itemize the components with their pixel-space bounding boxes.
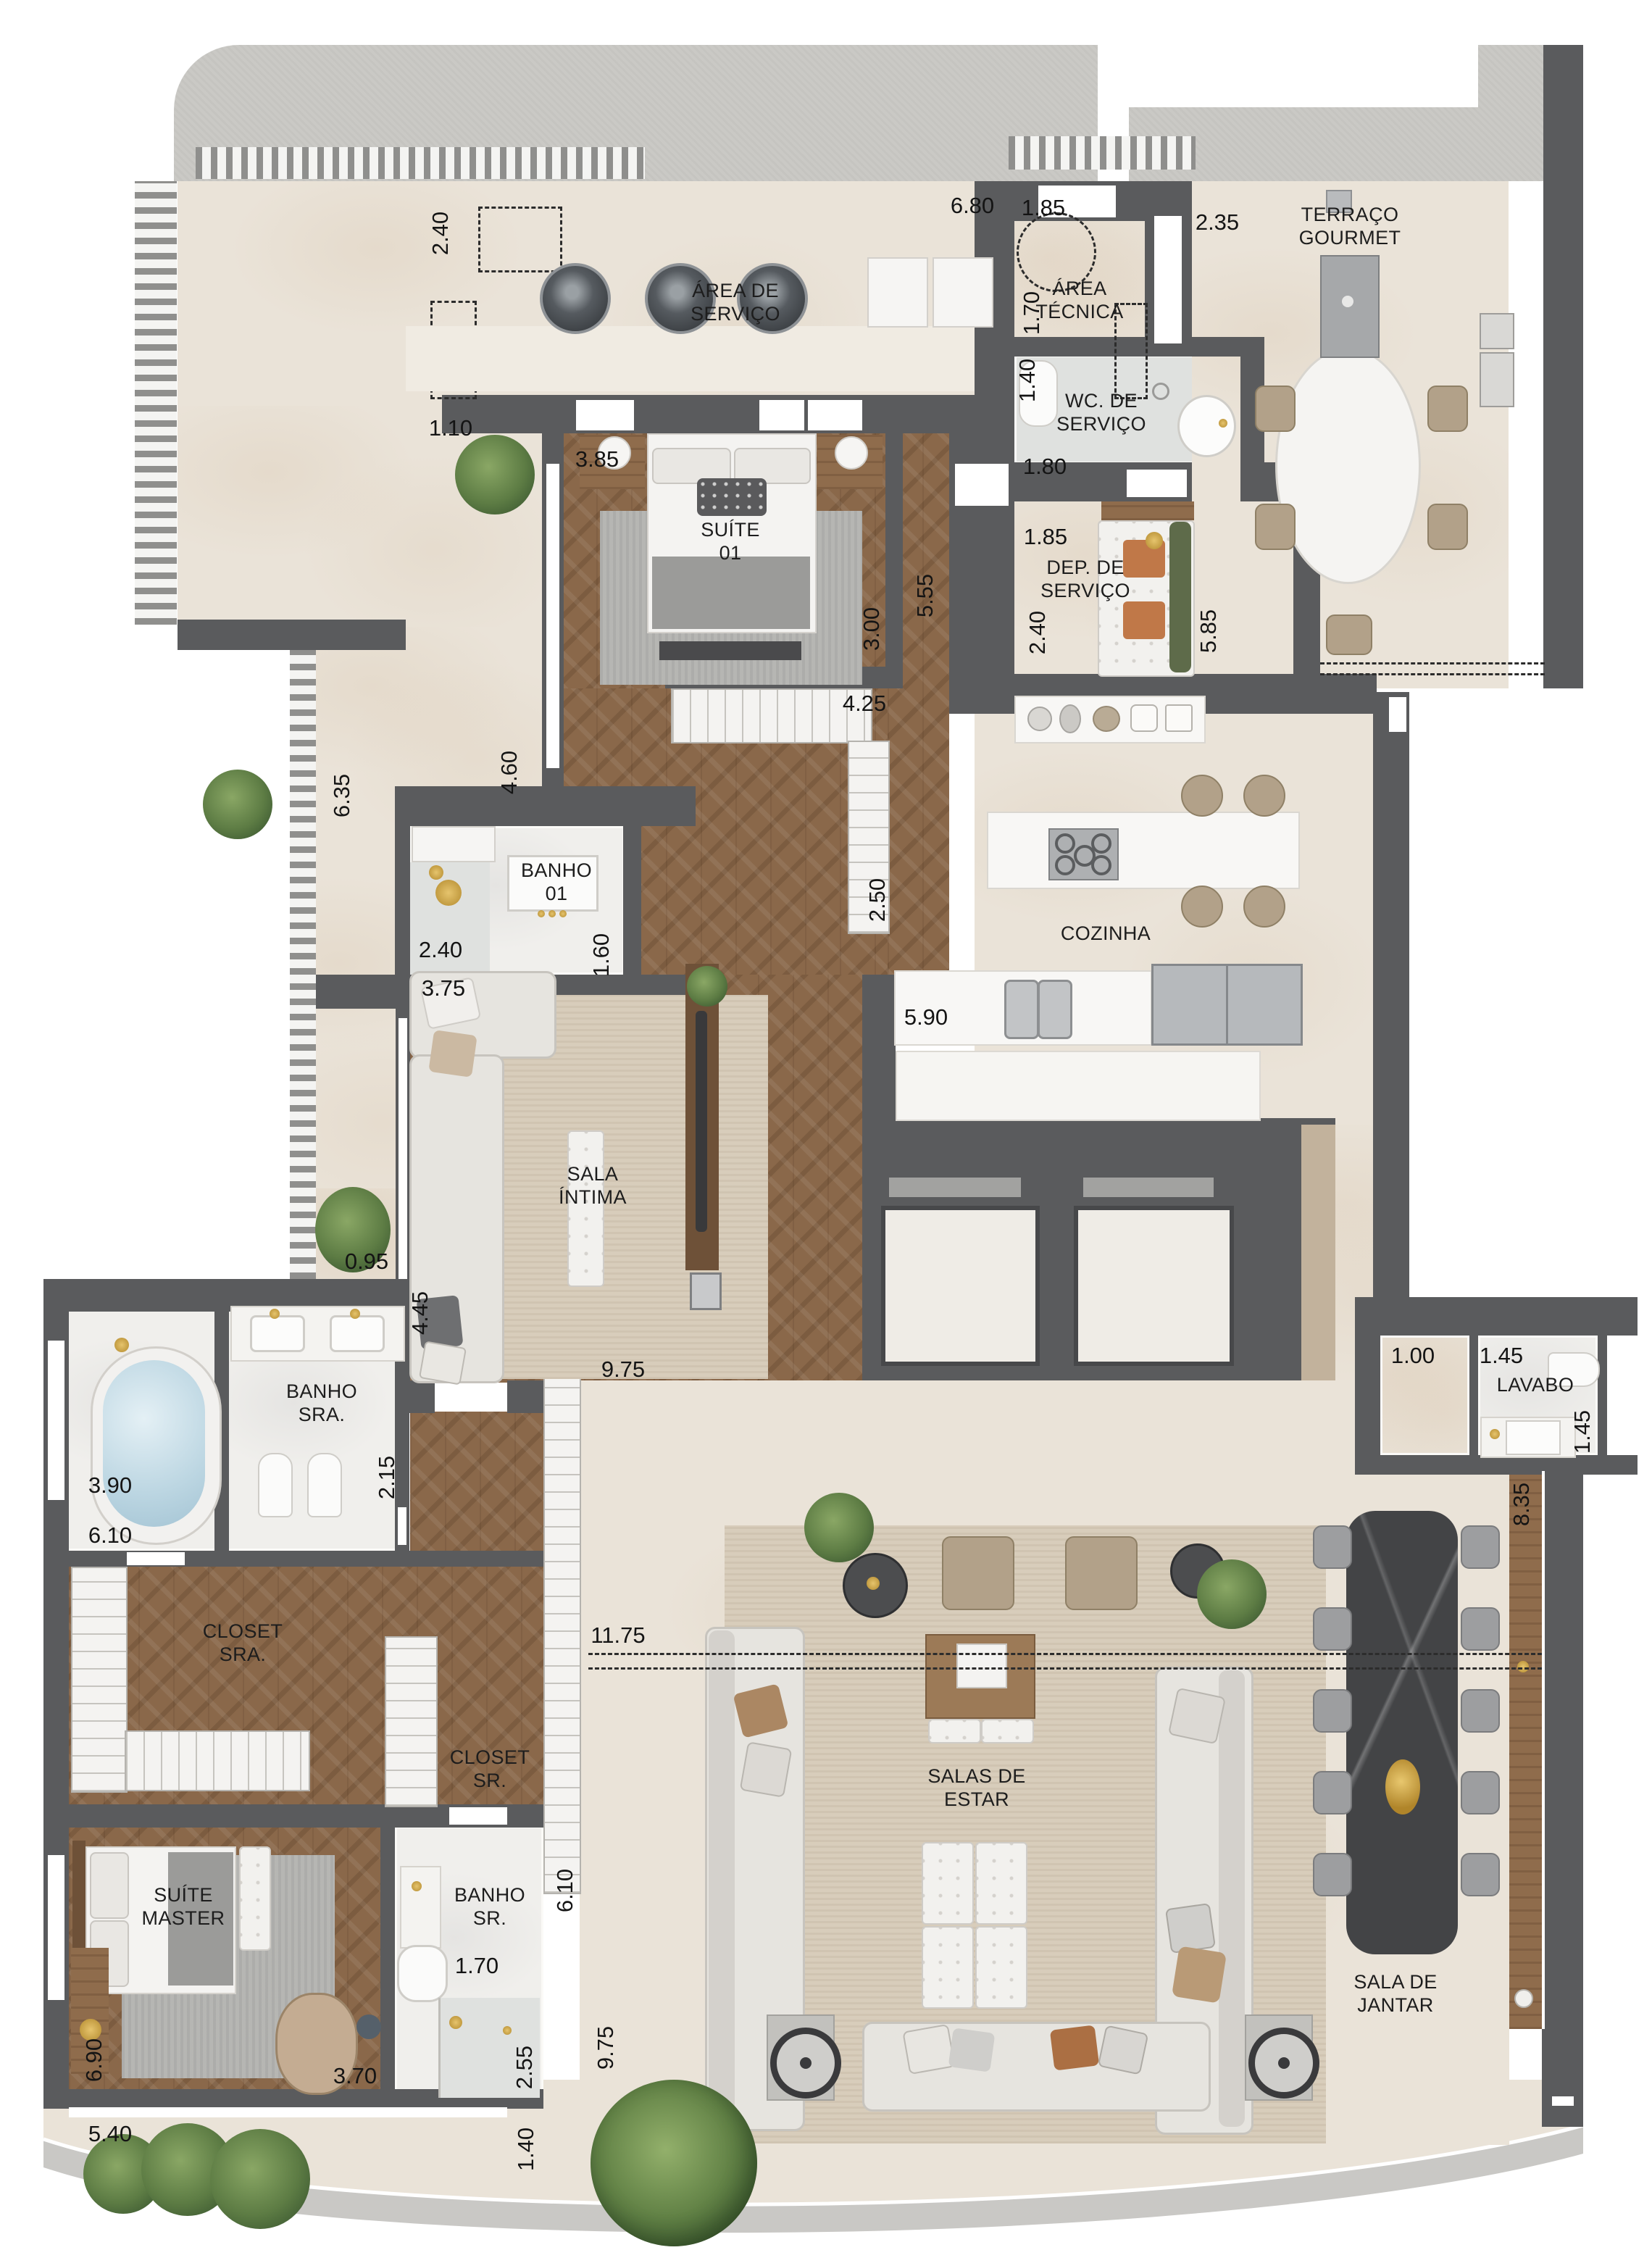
dim-4-45: 4.45 [407,1291,433,1335]
dim-1-40b: 1.40 [513,2128,539,2171]
dim-6-10: 6.10 [88,1522,132,1549]
suite01-blanket [652,557,810,629]
wall [409,1380,435,1413]
dryer [933,257,993,328]
coffee-table-tray [956,1643,1007,1688]
tub-faucet [114,1338,129,1352]
master-side-stool [356,2014,381,2039]
counter-appliance [1093,706,1120,732]
balcony-tree [591,2080,757,2246]
ref-line [1320,662,1545,664]
ref-line [588,1667,1542,1670]
door-gap [398,1507,406,1545]
fan [1248,2028,1319,2099]
sofa-pillow [1165,1903,1216,1954]
banho01-vanity [412,826,496,862]
bathtub-water [103,1360,205,1527]
wall [1355,1336,1380,1455]
ottoman-grid [922,1926,974,2009]
door-gap [127,1552,185,1565]
burner [1074,845,1096,867]
ref-line [588,1653,1542,1655]
door-gap [449,1807,507,1825]
dim-2-40c: 2.40 [419,937,462,963]
kitchen-sink [1004,980,1039,1039]
dim-3-90: 3.90 [88,1472,132,1499]
counter-appliance [1027,707,1052,731]
dim-3-85: 3.85 [575,446,619,472]
dining-chair [1313,1689,1352,1733]
dim-2-40: 2.40 [427,212,454,255]
sr-tub [397,1945,448,2002]
closet-sra-shelf-left [71,1567,128,1793]
label-sala-de-jantar: SALA DE JANTAR [1353,1971,1437,2017]
wall [507,1380,545,1413]
dim-1-10: 1.10 [429,415,472,441]
double-door [435,1383,507,1412]
dim-4-25: 4.25 [843,691,886,717]
dim-2-35: 2.35 [1196,209,1239,236]
kitchen-stool [1243,886,1285,928]
elevator-sill-2 [1083,1178,1214,1197]
ref-line [1320,673,1545,675]
banho01-chandelier [435,880,462,906]
dining-chair [1313,1525,1352,1569]
sideboard-decor [1517,1661,1529,1672]
closet-sra-shelf-bottom [125,1730,310,1791]
dim-2-40b: 2.40 [1025,611,1051,654]
dim-1-85b: 1.85 [1024,524,1067,550]
lavabo-faucet [1490,1429,1500,1439]
sofa-pillow [1098,2025,1149,2075]
dim-2-50: 2.50 [864,878,890,922]
label-dep-servico: DEP. DE SERVIÇO [1040,557,1130,603]
kitchen-stool [1181,886,1223,928]
kitchen-stool [1181,775,1223,817]
label-area-tecnica: ÁREA TÉCNICA [1035,278,1123,324]
closet-sr-shelf-right [543,1355,581,1894]
label-banho-sra: BANHO SRA. [286,1380,357,1427]
dim-6-10b: 6.10 [552,1869,578,1912]
washer [867,257,928,328]
sofa-pillow [428,1030,477,1078]
wall [178,620,406,650]
lavabo-basin [1506,1420,1561,1455]
terraco-chair [1427,386,1468,432]
dim-5-40: 5.40 [88,2121,132,2147]
wall [43,1551,580,1567]
dim-3-75: 3.75 [422,975,465,1001]
fan [770,2028,841,2099]
wall-unit [1480,313,1514,349]
kitchen-cabinet [896,1051,1261,1121]
sofa-pillow [419,1341,467,1385]
suite01-bench [659,641,801,660]
coffee-ottoman [981,1719,1034,1743]
hatch-strip-left [135,181,177,625]
dim-6-35: 6.35 [329,774,355,817]
door-gap [1154,216,1182,343]
sofa-pillow [902,2024,955,2075]
dining-chair [1461,1689,1500,1733]
wall-right-edge [1542,1471,1583,2127]
terraco-chair [1427,504,1468,550]
living-plant-right [1197,1559,1267,1629]
edge-handle [1552,2096,1574,2106]
wall [442,395,975,433]
dining-chair [1313,1607,1352,1651]
dim-9-75b: 9.75 [593,2026,619,2070]
dining-chair [1461,1771,1500,1814]
dining-chair [1461,1853,1500,1896]
burner [1055,833,1075,854]
elevator-shaft-2 [1074,1206,1234,1366]
dining-centerpiece [1385,1759,1420,1814]
sr-shower-head [449,2016,462,2029]
wall [1469,1336,1478,1455]
chaise-back [1219,1670,1245,2127]
hatch-strip-top-2 [1009,136,1196,170]
wc-sink [1177,395,1236,457]
balcony-strip [1607,1336,1636,1455]
wall [949,406,1014,714]
dep-lamp [1146,532,1163,549]
console-plant [687,966,727,1007]
wall [1192,337,1240,357]
dim-1-70: 1.70 [1019,291,1045,335]
wc-faucet [1219,419,1227,428]
sra-basin [330,1315,385,1352]
window-gap [759,400,804,430]
wall [395,826,410,975]
counter-appliance [1059,704,1081,733]
terraco-table [1275,348,1421,584]
floor-plan: ÁREA DE SERVIÇO ÁREA TÉCNICA TERRAÇO GOU… [0,0,1652,2250]
outdoor-kitchen-knob [1342,296,1353,307]
dim-1-85: 1.85 [1022,195,1065,221]
window-gap [546,464,559,768]
elevator-shaft-1 [881,1206,1040,1366]
label-closet-sr: CLOSET SR. [450,1746,530,1793]
dim-5-55: 5.55 [912,574,938,617]
dim-5-85: 5.85 [1196,609,1222,653]
dim-2-15: 2.15 [374,1456,400,1499]
kitchen-sink [1038,980,1072,1039]
sofa-pillow [740,1741,793,1798]
terraco-chair [1255,504,1296,550]
counter-appliance [1130,704,1158,732]
wall [623,826,641,975]
window-gap [48,1341,64,1500]
label-banho-sr: BANHO SR. [454,1884,525,1930]
dep-shelf [1101,501,1194,520]
dim-3-00: 3.00 [859,607,885,651]
kitchen-stool [1243,775,1285,817]
dim-2-55: 2.55 [512,2046,538,2089]
door-gap [955,464,1009,506]
ottoman-grid [975,1842,1027,1925]
dim-11-75: 11.75 [591,1622,645,1649]
label-suite-master: SUÍTE MASTER [142,1884,225,1930]
label-cozinha: COZINHA [1061,922,1151,946]
label-salas-de-estar: SALAS DE ESTAR [927,1765,1025,1812]
media-box [690,1272,722,1310]
side-table-decor [867,1577,880,1590]
closet-sr-shelf-center [385,1636,438,1807]
banho01-faucet [538,910,545,917]
dep-blanket [1169,522,1191,672]
suite01-accent-pillow [697,478,767,516]
dim-9-75: 9.75 [601,1357,645,1383]
window-sill [69,2107,507,2117]
elevator-side-strip [1301,1125,1335,1380]
dim-1-45b: 1.45 [1569,1410,1595,1454]
label-banho-01: BANHO 01 [521,859,592,906]
sofa-pillow [1168,1688,1226,1745]
sra-bidet [307,1453,342,1517]
dim-5-90: 5.90 [904,1004,948,1030]
laundry-sink [540,263,611,334]
dining-chair [1313,1853,1352,1896]
wall [1598,1336,1607,1455]
dim-1-40: 1.40 [1014,359,1040,402]
window-gap [1389,697,1406,732]
window-gap [808,400,862,430]
banho01-faucet [559,910,567,917]
sofa-pillow [1172,1946,1227,2003]
master-bench [239,1846,271,1951]
ottoman-grid [922,1842,974,1925]
label-suite-01: SUÍTE 01 [701,519,760,565]
sra-faucet [270,1309,280,1319]
fridge [1151,964,1228,1046]
dim-1-80: 1.80 [1023,454,1067,480]
ottoman-grid [975,1926,1027,2009]
outer-wall-right-top [1543,45,1583,688]
wall-unit [1480,352,1514,407]
dim-6-90: 6.90 [81,2038,107,2082]
living-armchair [1065,1536,1138,1610]
sideboard-decor [1514,1989,1533,2008]
dim-1-00: 1.00 [1391,1343,1435,1369]
label-area-servico: ÁREA DE SERVIÇO [691,280,780,326]
chaise-back [709,1630,735,2123]
service-counter [406,326,975,391]
terraco-chair [1326,614,1372,655]
dim-3-70: 3.70 [333,2063,377,2089]
dim-1-60: 1.60 [588,933,614,977]
sofa-pillow [1050,2025,1099,2070]
hatch-strip-top [196,147,645,179]
master-pillow [90,1852,129,1919]
suite-terrace-plant [455,435,535,514]
suite01-lamp [835,436,868,470]
kitchen-island [987,812,1300,889]
dim-0-95: 0.95 [345,1249,388,1275]
terrace-band-corner [1478,45,1548,107]
dim-6-80: 6.80 [951,193,994,219]
living-armchair [942,1536,1014,1610]
living-plant-left [804,1493,874,1562]
wall [395,786,696,826]
dining-chair [1313,1771,1352,1814]
door-gap [1127,470,1187,497]
dim-1-45: 1.45 [1480,1343,1523,1369]
sra-toilet [258,1453,293,1517]
dim-4-60: 4.60 [496,751,522,794]
window-gap [48,1855,64,2000]
wall [1373,692,1409,1297]
sofa-pillow [948,2028,996,2072]
dining-chair [1461,1607,1500,1651]
sra-faucet [350,1309,360,1319]
window-gap [576,400,634,430]
sr-vanity [400,1866,441,1949]
wall [885,431,903,688]
label-wc-servico: WC. DE SERVIÇO [1056,390,1146,436]
balcony-plant [210,2129,310,2229]
sr-shower-handle [503,2026,512,2035]
sra-basin [250,1315,305,1352]
counter-appliance [1165,704,1193,732]
dining-table [1346,1511,1458,1954]
banho01-shower-head [429,865,443,880]
dep-pillow [1123,601,1165,639]
label-terraco-gourmet: TERRAÇO GOURMET [1299,204,1401,250]
wall [1355,1455,1638,1475]
wall [380,1826,395,2105]
coffee-ottoman [928,1719,981,1743]
service-storage-outline [478,207,562,272]
wc-shower-drain [1152,383,1169,400]
wall-seam [1542,1471,1545,2029]
tv [696,1011,707,1232]
label-sala-intima: SALA ÍNTIMA [559,1163,627,1209]
sr-faucet [412,1881,422,1891]
fridge [1226,964,1303,1046]
wall [1355,1297,1638,1336]
hatch-strip-left-2 [290,649,316,1279]
dining-sideboard [1509,1471,1542,2029]
label-closet-sra: CLOSET SRA. [203,1620,283,1667]
label-lavabo: LAVABO [1497,1374,1574,1397]
dim-1-70b: 1.70 [455,1953,498,1979]
terraco-chair [1255,386,1296,432]
dim-8-35: 8.35 [1509,1483,1535,1526]
burner [1055,855,1075,875]
niche-plant-left [203,770,272,839]
elevator-sill-1 [889,1178,1021,1197]
master-sconce [80,2019,101,2041]
banho01-faucet [548,910,556,917]
dining-chair [1461,1525,1500,1569]
